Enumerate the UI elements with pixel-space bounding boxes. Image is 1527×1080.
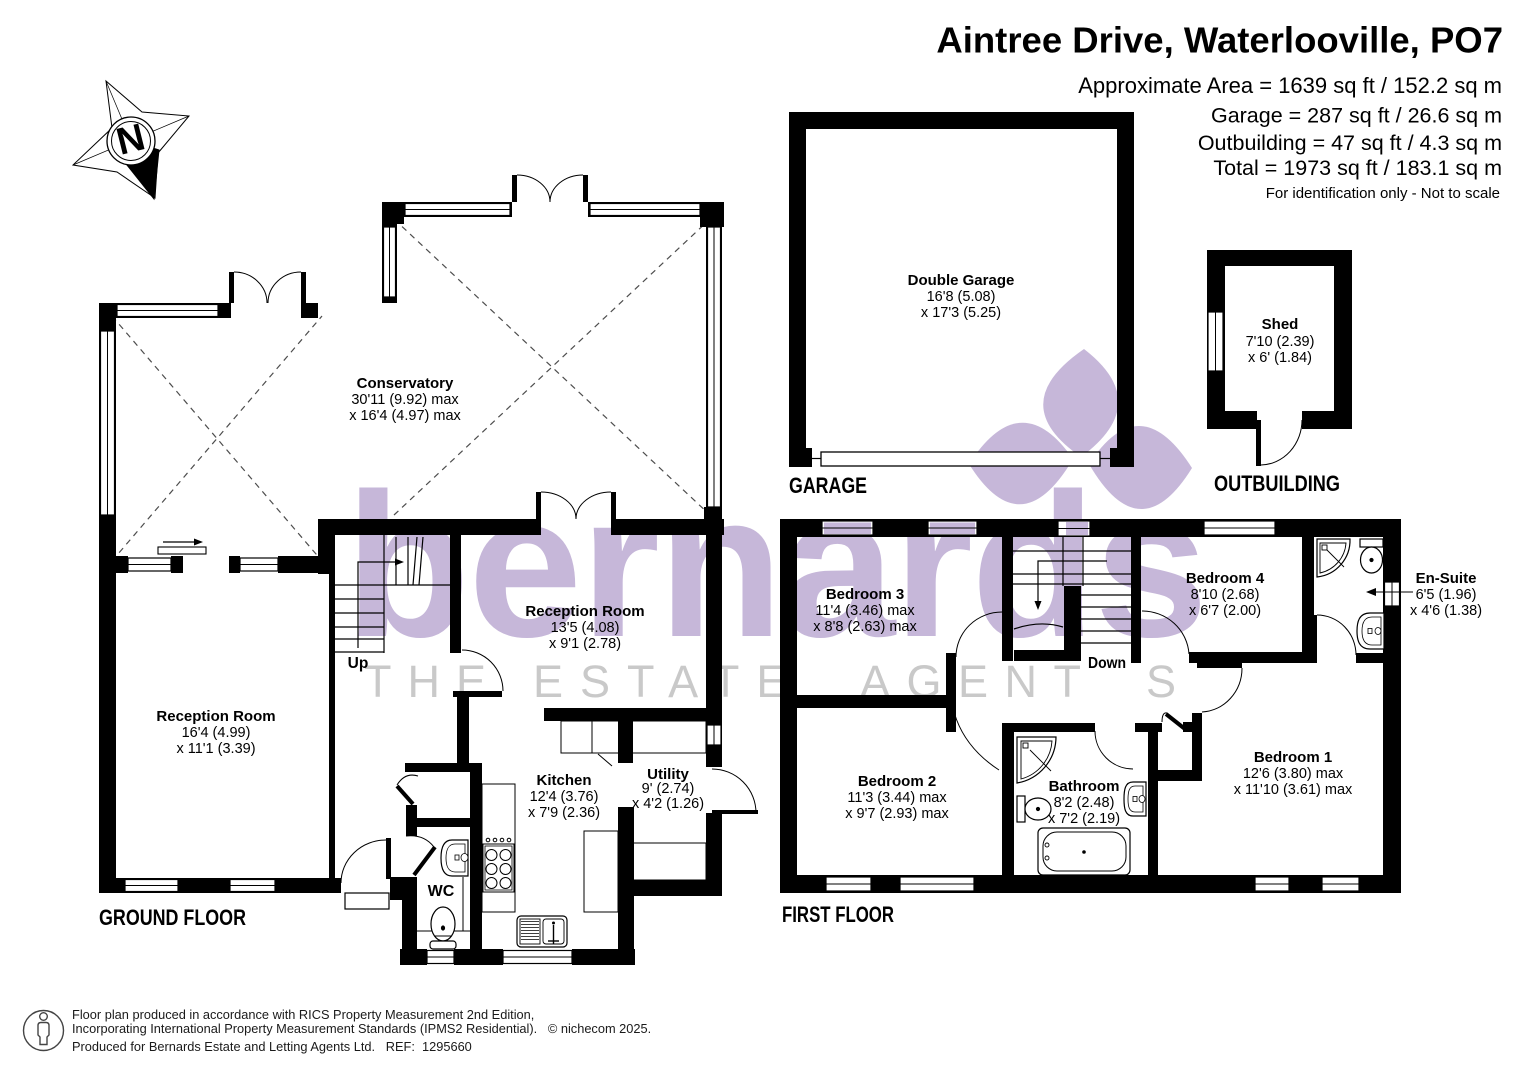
svg-text:Floor plan produced in accorda: Floor plan produced in accordance with R…	[72, 1007, 534, 1022]
svg-text:x 16'4 (4.97) max: x 16'4 (4.97) max	[349, 408, 461, 424]
svg-text:30'11 (9.92) max: 30'11 (9.92) max	[351, 392, 459, 408]
svg-text:Bedroom 4: Bedroom 4	[1186, 570, 1265, 587]
svg-text:6'5 (1.96): 6'5 (1.96)	[1416, 587, 1477, 603]
svg-text:x 7'2 (2.19): x 7'2 (2.19)	[1048, 811, 1120, 827]
svg-text:Down: Down	[1088, 655, 1126, 672]
svg-text:Bedroom 1: Bedroom 1	[1254, 749, 1332, 766]
svg-text:x 9'1 (2.78): x 9'1 (2.78)	[549, 636, 621, 652]
svg-text:13'5 (4.08): 13'5 (4.08)	[551, 620, 620, 636]
svg-text:Reception Room: Reception Room	[156, 708, 275, 725]
svg-text:x 11'10 (3.61) max: x 11'10 (3.61) max	[1234, 782, 1353, 798]
svg-text:FIRST FLOOR: FIRST FLOOR	[782, 902, 894, 927]
svg-text:12'4 (3.76): 12'4 (3.76)	[530, 789, 599, 805]
svg-text:Reception Room: Reception Room	[525, 603, 644, 620]
svg-text:16'4 (4.99): 16'4 (4.99)	[182, 725, 251, 741]
svg-text:Garage = 287 sq ft / 26.6 sq m: Garage = 287 sq ft / 26.6 sq m	[1211, 104, 1502, 128]
svg-text:Approximate Area = 1639 sq ft: Approximate Area = 1639 sq ft / 152.2 sq…	[1078, 73, 1502, 98]
svg-text:OUTBUILDING: OUTBUILDING	[1214, 471, 1340, 496]
svg-text:Produced for Bernards Estate a: Produced for Bernards Estate and Letting…	[72, 1039, 472, 1054]
svg-text:GROUND FLOOR: GROUND FLOOR	[99, 905, 246, 930]
svg-text:16'8 (5.08): 16'8 (5.08)	[927, 289, 996, 305]
svg-text:7'10 (2.39): 7'10 (2.39)	[1246, 334, 1315, 350]
svg-text:x 11'1 (3.39): x 11'1 (3.39)	[176, 741, 255, 757]
svg-text:Shed: Shed	[1262, 316, 1299, 333]
svg-text:9' (2.74): 9' (2.74)	[642, 781, 695, 797]
svg-text:8'10 (2.68): 8'10 (2.68)	[1191, 587, 1260, 603]
svg-text:Bathroom: Bathroom	[1049, 778, 1120, 795]
svg-text:ESTATE: ESTATE	[533, 656, 803, 707]
svg-text:Up: Up	[348, 655, 369, 672]
svg-text:Bedroom 2: Bedroom 2	[858, 773, 936, 790]
svg-text:THE: THE	[364, 656, 502, 707]
svg-text:x 7'9 (2.36): x 7'9 (2.36)	[528, 805, 600, 821]
svg-text:Total = 1973 sq ft / 183.1 sq: Total = 1973 sq ft / 183.1 sq m	[1213, 156, 1502, 180]
svg-text:x 4'6 (1.38): x 4'6 (1.38)	[1410, 603, 1482, 619]
svg-text:Double Garage: Double Garage	[908, 272, 1015, 289]
svg-text:Aintree Drive, Waterlooville,: Aintree Drive, Waterlooville, PO7	[936, 20, 1503, 61]
svg-text:GARAGE: GARAGE	[789, 473, 867, 498]
svg-text:S: S	[1146, 656, 1176, 707]
svg-text:Incorporating International Pr: Incorporating International Property Mea…	[72, 1021, 651, 1036]
svg-text:12'6 (3.80) max: 12'6 (3.80) max	[1243, 766, 1344, 782]
svg-text:x 17'3 (5.25): x 17'3 (5.25)	[921, 305, 1001, 321]
svg-text:For identification only - Not: For identification only - Not to scale	[1266, 185, 1500, 202]
svg-text:Bedroom 3: Bedroom 3	[826, 586, 904, 603]
svg-text:En-Suite: En-Suite	[1416, 570, 1477, 587]
svg-text:x 4'2 (1.26): x 4'2 (1.26)	[632, 796, 704, 812]
svg-text:11'4 (3.46) max: 11'4 (3.46) max	[815, 603, 915, 619]
svg-text:x 8'8 (2.63) max: x 8'8 (2.63) max	[813, 619, 917, 635]
svg-text:Kitchen: Kitchen	[536, 772, 591, 789]
svg-text:WC: WC	[428, 883, 455, 900]
svg-text:Conservatory: Conservatory	[357, 375, 454, 392]
svg-text:x 6'7 (2.00): x 6'7 (2.00)	[1189, 603, 1261, 619]
svg-text:8'2 (2.48): 8'2 (2.48)	[1054, 795, 1115, 811]
svg-text:x 9'7 (2.93) max: x 9'7 (2.93) max	[845, 806, 949, 822]
svg-text:x 6' (1.84): x 6' (1.84)	[1248, 350, 1312, 366]
svg-text:Outbuilding = 47 sq ft / 4.3 s: Outbuilding = 47 sq ft / 4.3 sq m	[1198, 131, 1502, 155]
svg-text:11'3 (3.44) max: 11'3 (3.44) max	[847, 790, 947, 806]
